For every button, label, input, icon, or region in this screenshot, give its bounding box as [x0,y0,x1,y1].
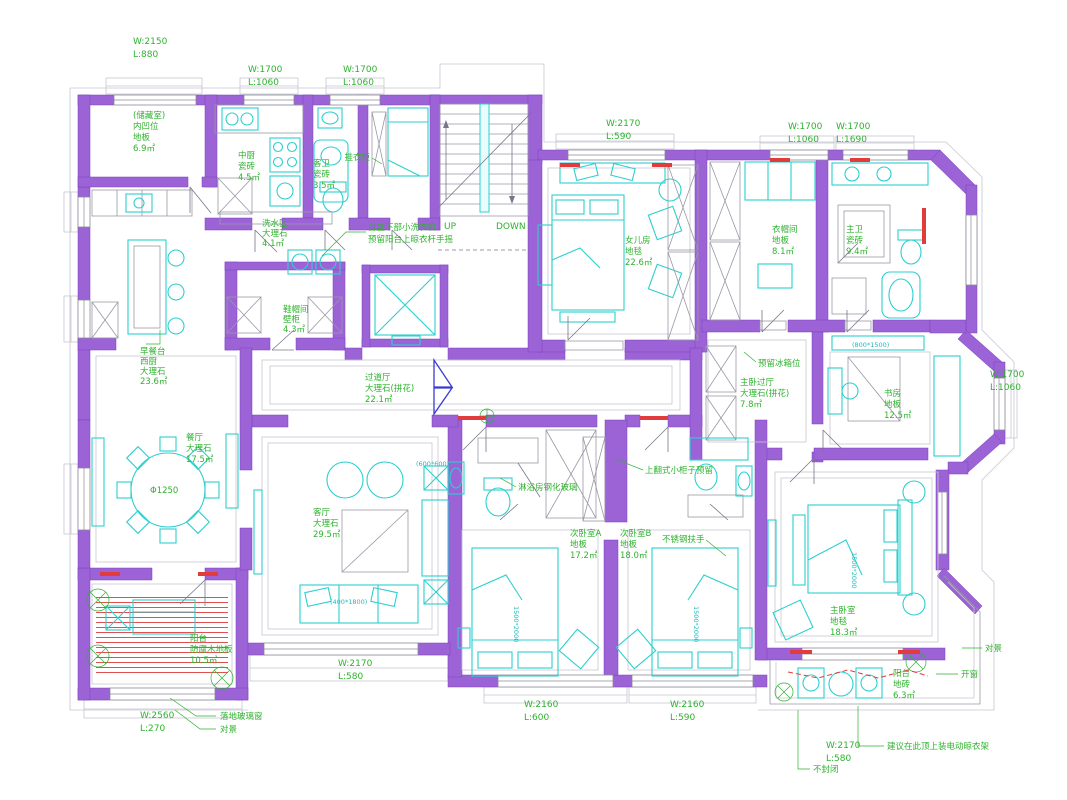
round-chair [367,462,403,498]
svg-text:8.1㎡: 8.1㎡ [772,247,795,257]
note-fridge: 预留冰箱位 [744,352,801,369]
svg-text:次卧室A: 次卧室A [570,528,602,539]
round-table [659,179,681,201]
towel-radiator [922,208,926,244]
window [802,648,903,660]
note-wardrobe: 挂衣柜 [344,152,382,164]
svg-text:3.5㎡: 3.5㎡ [313,181,336,191]
svg-text:女儿房: 女儿房 [625,235,651,246]
svg-text:过道厅: 过道厅 [365,372,391,383]
svg-text:大理石: 大理石 [140,366,166,377]
window [966,215,977,285]
svg-text:客卫: 客卫 [313,158,331,169]
room-label-living: 客厅 大理石 29.5㎡ [313,507,341,540]
window [632,675,753,687]
dim-label: W:1700L:1690 [836,122,871,145]
svg-text:衣帽间: 衣帽间 [772,224,798,235]
svg-text:W:1700: W:1700 [788,122,823,132]
note-openwin: 开窗 [936,669,978,680]
se-balcony [770,576,980,704]
nightstand [903,481,925,503]
svg-text:9.4㎡: 9.4㎡ [846,247,869,257]
armchair [648,264,681,297]
svg-text:不封闭: 不封闭 [813,764,839,775]
nightstand [903,593,925,615]
svg-text:主卧过厅: 主卧过厅 [740,377,775,388]
svg-text:W:1700: W:1700 [343,65,378,75]
threshold [845,321,871,330]
window [498,675,613,687]
svg-text:10.5㎡: 10.5㎡ [190,656,218,666]
tv-cabinet [254,490,262,574]
note-laundry: 台盆下部小洗衣机 预留阳台上晾衣杆手摇 [322,222,454,256]
stair-down-label: DOWN [496,222,526,232]
svg-text:18.0㎡: 18.0㎡ [620,551,648,561]
svg-text:17.5㎡: 17.5㎡ [186,455,214,465]
svg-text:地板: 地板 [570,539,588,550]
svg-text:地板: 地板 [133,132,151,143]
svg-text:L:590: L:590 [670,713,695,723]
cloak-room-furniture [710,162,815,320]
sill [64,192,78,232]
round-table [829,672,853,696]
svg-text:L:590: L:590 [606,132,631,142]
window [110,688,215,700]
window [568,150,665,160]
dim-label: W:2150L:880 [133,37,168,60]
closet [583,437,605,521]
svg-text:L:580: L:580 [338,672,363,682]
dim-label: W:2160L:590 [670,700,705,723]
window [244,95,294,105]
svg-text:中厨: 中厨 [238,150,256,161]
dim-label: W:1700L:1060 [248,65,283,88]
bed-size-tag: 1500*2000 [512,606,520,642]
daughter-room-furniture [538,163,698,340]
svg-text:对景: 对景 [985,643,1002,654]
elevator [375,275,435,345]
svg-text:W:2160: W:2160 [524,700,559,710]
svg-text:L:1690: L:1690 [836,135,867,145]
svg-text:开窗: 开窗 [961,669,978,680]
svg-text:不锈钢扶手: 不锈钢扶手 [662,534,705,545]
svg-text:大理石: 大理石 [186,443,212,454]
bay-bench [934,356,960,456]
sidetable-size-tag: (600*600) [416,460,449,468]
sill [106,78,202,94]
svg-text:L:1060: L:1060 [343,78,374,88]
chair [616,629,655,668]
svg-text:内凹位: 内凹位 [133,121,159,132]
svg-text:23.6㎡: 23.6㎡ [140,377,168,387]
svg-text:对景: 对景 [220,724,237,735]
masterbath-shower-floor [832,278,866,314]
svg-text:地板: 地板 [620,539,638,550]
wardrobe [668,252,698,340]
svg-text:W:2160: W:2160 [670,700,705,710]
svg-text:淋浴房钢化玻璃: 淋浴房钢化玻璃 [518,482,578,493]
sill [64,464,78,534]
svg-text:瓷砖: 瓷砖 [846,235,864,246]
nanny-room-furniture [372,108,428,176]
window [78,300,90,338]
bed-size-tag: 1500*2000 [692,606,700,642]
sill [1005,370,1017,438]
svg-text:防腐木地板: 防腐木地板 [190,644,233,655]
dim-label: W:2170L:590 [606,119,641,142]
svg-text:L:1060: L:1060 [788,135,819,145]
dim-label: W:2160L:600 [524,700,559,723]
stair-up-label: UP [444,222,457,232]
room-label-closet: 鞋帽间 壁柜 4.3㎡ [283,304,309,335]
svg-text:台盆下部小洗衣机: 台盆下部小洗衣机 [368,222,437,233]
note-view2: 对景 [962,643,1002,654]
window [938,492,947,554]
svg-text:L:600: L:600 [524,713,549,723]
svg-text:建议在此顶上装电动晾衣架: 建议在此顶上装电动晾衣架 [887,741,990,752]
svg-text:4.3㎡: 4.3㎡ [283,325,306,335]
svg-text:22.6㎡: 22.6㎡ [625,258,653,268]
svg-text:早餐台: 早餐台 [140,346,166,357]
note-rail: 不锈钢扶手 [662,534,726,556]
svg-text:17.2㎡: 17.2㎡ [570,551,598,561]
svg-text:W:2170: W:2170 [606,119,641,129]
note-dryrack: 建议在此顶上装电动晾衣架 [858,706,990,752]
dim-label: W:2560L:270 [140,711,175,734]
floor-plan-drawing: UP DOWN [0,0,1067,800]
dim-label: W:1700L:1060 [343,65,378,88]
svg-text:地毯: 地毯 [625,246,643,257]
svg-text:地板: 地板 [772,235,790,246]
svg-text:6.9㎡: 6.9㎡ [133,144,156,154]
room-label-daughter: 女儿房 地毯 22.6㎡ [625,235,653,268]
svg-text:W:2150: W:2150 [133,37,168,47]
room-label-masterbed: 主卧室 地毯 18.3㎡ [830,605,858,638]
threshold [565,341,623,350]
svg-text:L:270: L:270 [140,724,165,734]
svg-text:7.8㎡: 7.8㎡ [740,400,763,410]
svg-text:6.3㎡: 6.3㎡ [893,691,916,701]
bench [758,264,792,288]
rug [342,510,408,572]
chair [559,629,598,668]
window [78,197,90,227]
dim-label: W:1700L:1060 [788,122,823,145]
note-flipcab: 上翻式小柜子预留 [618,460,713,476]
room-label-masterhall: 主卧过厅 大理石(拼花) 7.8㎡ [740,377,789,410]
svg-text:地毯: 地毯 [830,616,848,627]
svg-text:鞋帽间: 鞋帽间 [283,304,309,315]
svg-text:12.5㎡: 12.5㎡ [884,411,912,421]
room-label-kitchen: 中厨 瓷砖 4.5㎡ [238,150,261,183]
dim-label: W:2170L:580 [826,741,861,764]
batha-shower-floor [478,438,538,463]
threshold [760,321,786,330]
bar-stool [168,284,184,300]
room-label-corridor: 过道厅 大理石(拼花) 22.1㎡ [365,372,414,405]
svg-text:洗水区: 洗水区 [262,218,288,229]
svg-text:W:2560: W:2560 [140,711,175,721]
svg-text:L:1060: L:1060 [248,78,279,88]
wardrobe [668,165,698,250]
room-label-westkitchen: 早餐台 西厨 大理石 23.6㎡ [140,330,168,387]
svg-text:大理石(拼花): 大理石(拼花) [365,383,414,394]
side-table [424,466,448,490]
west-kitchen-furniture [92,190,192,338]
svg-text:18.3㎡: 18.3㎡ [830,628,858,638]
svg-text:主卧室: 主卧室 [830,605,856,616]
bathb-shower-floor [688,495,743,517]
svg-text:4.1㎡: 4.1㎡ [262,239,285,249]
svg-text:W:1700: W:1700 [990,370,1025,380]
svg-text:4.5㎡: 4.5㎡ [238,173,261,183]
svg-text:预留阳台上晾衣杆手摇: 预留阳台上晾衣杆手摇 [368,234,454,245]
side-table [424,580,448,604]
svg-text:L:1060: L:1060 [990,383,1021,393]
svg-text:西厨: 西厨 [140,357,158,367]
armchair [773,600,813,640]
sofa-size-tag: (400*1800) [330,598,367,606]
chair [842,383,858,399]
room-label-cloak: 衣帽间 地板 8.1㎡ [772,224,798,257]
room-label-guestbath: 客卫 瓷砖 3.5㎡ [313,158,336,191]
svg-text:书房: 书房 [884,388,901,399]
svg-text:大理石: 大理石 [262,228,288,239]
svg-text:上翻式小柜子预留: 上翻式小柜子预留 [645,465,713,476]
svg-text:次卧室B: 次卧室B [620,528,652,539]
svg-text:阳台: 阳台 [893,668,910,679]
svg-text:落地玻璃窗: 落地玻璃窗 [220,711,263,722]
room-label-storage: (储藏室) 内凹位 地板 6.9㎡ [133,110,165,154]
svg-text:挂衣柜: 挂衣柜 [344,152,370,163]
svg-text:瓷砖: 瓷砖 [238,161,256,172]
svg-text:预留冰箱位: 预留冰箱位 [758,358,801,369]
room-label-bedroomb: 次卧室B 地板 18.0㎡ [620,528,652,561]
armchair [648,206,681,239]
dining-table-diameter: Φ1250 [150,486,178,496]
svg-text:29.5㎡: 29.5㎡ [313,530,341,540]
svg-text:大理石: 大理石 [313,518,339,529]
svg-text:L:880: L:880 [133,50,158,60]
window [330,95,380,105]
dim-label: W:2170L:580 [338,659,373,682]
console [422,500,448,576]
room-label-dining: 餐厅 大理石 17.5㎡ [186,433,214,465]
window [114,95,196,105]
sideboard [92,438,104,526]
svg-text:餐厅: 餐厅 [186,433,204,443]
island-counter [128,240,166,334]
bed-size-tag: 1500*2000 [850,552,858,588]
svg-text:大理石(拼花): 大理石(拼花) [740,388,789,399]
svg-text:(储藏室): (储藏室) [133,110,165,121]
svg-text:W:1700: W:1700 [248,65,283,75]
corridor-decor [262,360,680,423]
round-chair [327,462,363,498]
stair-handrail [480,104,489,212]
svg-text:地砖: 地砖 [893,679,911,690]
sill [64,296,78,342]
svg-text:W:2170: W:2170 [826,741,861,751]
svg-text:地板: 地板 [884,399,902,410]
bed [808,500,912,595]
window [264,643,418,655]
kitchen-furniture [215,105,303,214]
svg-text:L:580: L:580 [826,754,851,764]
window [78,468,90,530]
svg-text:客厅: 客厅 [313,507,331,518]
svg-text:W:1700: W:1700 [836,122,871,132]
room-label-masterbath: 主卫 瓷砖 9.4㎡ [846,224,869,257]
svg-text:壁柜: 壁柜 [283,314,301,325]
floor-plan-canvas: UP DOWN [0,0,1067,800]
entry-double-door [434,360,452,414]
svg-text:22.1㎡: 22.1㎡ [365,395,393,405]
studybench-size-tag: (800*1500) [852,341,889,349]
bar-stool [168,250,184,266]
bar-stool [168,318,184,334]
bed [552,195,624,322]
room-label-study: 书房 地板 12.5㎡ [884,388,912,421]
foyer-closet [546,430,596,518]
svg-text:W:2170: W:2170 [338,659,373,669]
svg-text:主卫: 主卫 [846,224,864,235]
room-label-balconyse: 阳台 地砖 6.3㎡ [893,668,916,701]
room-label-bedrooma: 次卧室A 地板 17.2㎡ [570,528,602,561]
svg-text:阳台: 阳台 [190,633,207,644]
svg-text:瓷砖: 瓷砖 [313,169,331,180]
staircase: UP DOWN [436,104,532,250]
bench [793,515,805,585]
room-label-laundry: 洗水区 大理石 4.1㎡ [262,218,288,249]
